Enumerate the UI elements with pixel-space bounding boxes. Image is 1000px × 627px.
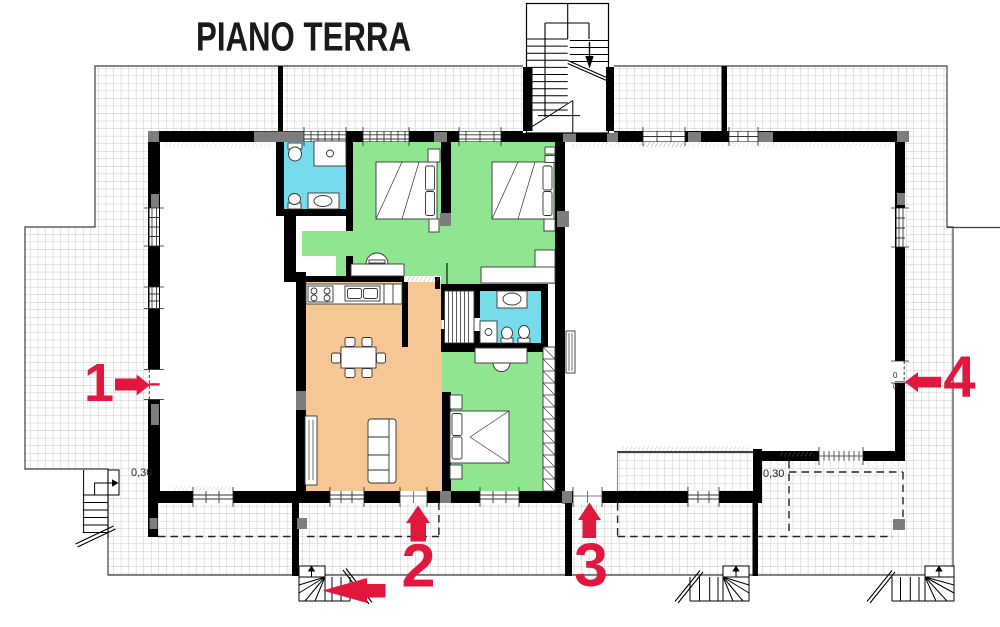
svg-text:2: 2 [402,532,436,600]
svg-text:0: 0 [893,382,898,391]
svg-text:PIANO TERRA: PIANO TERRA [196,14,411,60]
svg-text:0,30: 0,30 [763,468,784,480]
svg-text:3: 3 [574,531,608,599]
svg-text:0,30: 0,30 [131,467,152,479]
svg-text:1: 1 [84,353,114,413]
svg-text:0: 0 [893,371,898,380]
svg-text:4: 4 [943,345,975,410]
